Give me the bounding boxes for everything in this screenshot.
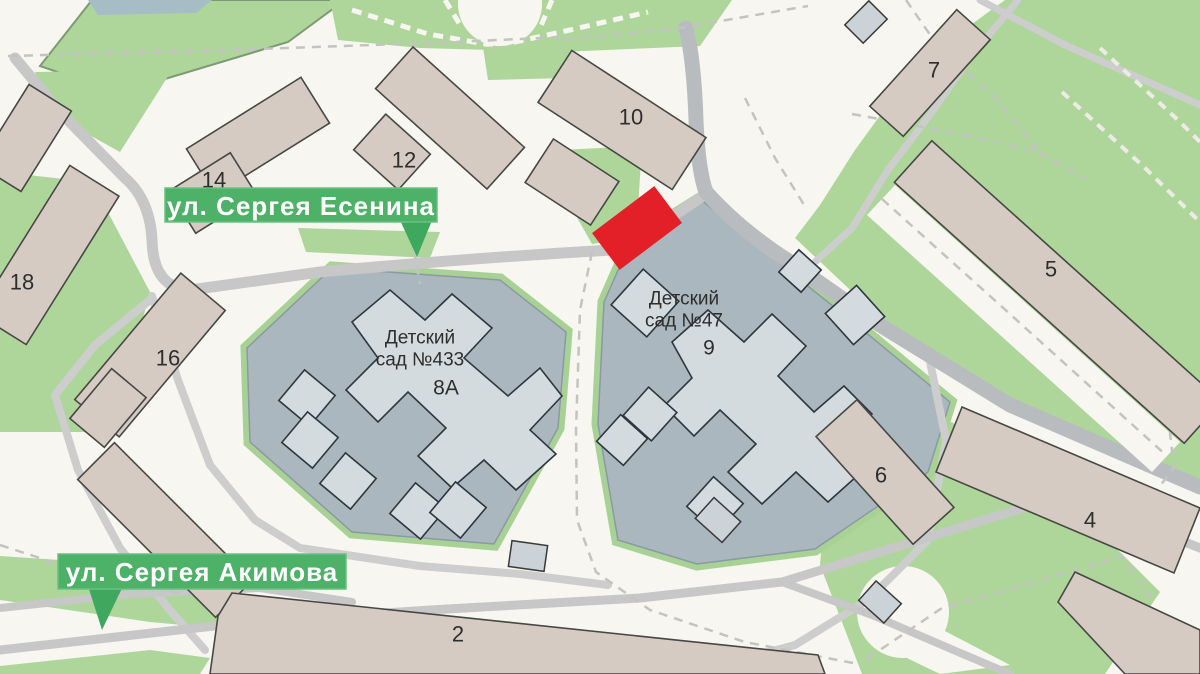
house-number-18: 18: [10, 270, 34, 295]
map-canvas[interactable]: 14 12 10 7 18 16 5 6 4 2 Детский сад №43…: [0, 0, 1200, 674]
house-number-2: 2: [452, 622, 464, 647]
pond-top-left: [88, 0, 212, 15]
footpath-junction: [745, 98, 806, 208]
kg433-label-line1: Детский: [385, 328, 455, 349]
house-number-10: 10: [619, 105, 643, 130]
house-number-12: 12: [392, 148, 416, 173]
small-building: [508, 541, 547, 572]
house-number-16: 16: [156, 346, 180, 371]
kg433-label-line2: сад №433: [376, 350, 465, 371]
kg433-building-number: 8А: [433, 377, 459, 400]
house-number-5: 5: [1045, 257, 1057, 282]
green-band-bottom-left-2: [0, 650, 210, 674]
city-map[interactable]: 14 12 10 7 18 16 5 6 4 2 Детский сад №43…: [0, 0, 1200, 674]
kg47-building-number: 9: [703, 337, 715, 360]
house-number-4: 4: [1084, 508, 1096, 533]
kg47-label-line1: Детский: [649, 289, 719, 310]
small-building: [845, 1, 887, 43]
akimova-label-text: ул. Сергея Акимова: [66, 557, 339, 587]
esenina-label-text: ул. Сергея Есенина: [167, 191, 435, 221]
house-number-7: 7: [928, 58, 940, 83]
kg47-label-line2: сад №47: [645, 311, 723, 332]
house-number-6: 6: [875, 463, 887, 488]
